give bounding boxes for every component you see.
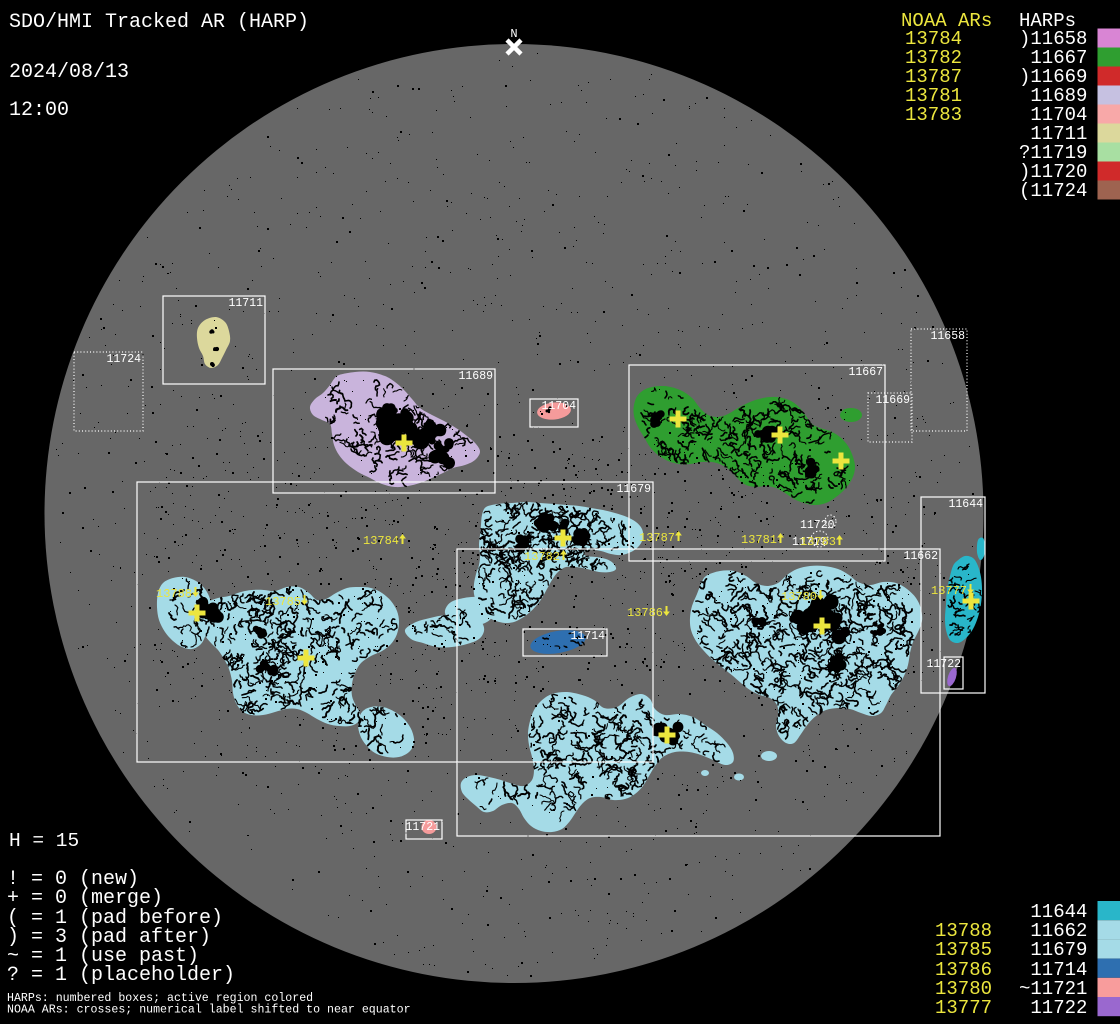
svg-text:13784: 13784 (363, 534, 399, 548)
svg-text:11679: 11679 (1019, 939, 1087, 961)
svg-text:11667: 11667 (848, 366, 883, 379)
svg-text:11724: 11724 (106, 353, 141, 366)
svg-text:11720: 11720 (800, 519, 835, 532)
svg-text:11644: 11644 (948, 498, 983, 511)
svg-text:11722: 11722 (926, 658, 961, 671)
svg-text:13786: 13786 (627, 606, 663, 620)
svg-text:11721: 11721 (405, 821, 440, 834)
svg-text:11722: 11722 (1019, 997, 1087, 1019)
svg-text:13777: 13777 (935, 997, 992, 1019)
svg-text:13783: 13783 (800, 535, 836, 549)
svg-text:N: N (510, 27, 517, 41)
svg-text:2024/08/13: 2024/08/13 (9, 61, 129, 84)
svg-text:13785: 13785 (935, 939, 992, 961)
svg-text:? = 1 (placeholder): ? = 1 (placeholder) (7, 964, 235, 987)
svg-text:13777: 13777 (931, 584, 967, 598)
svg-text:11711: 11711 (228, 297, 263, 310)
svg-text:13788: 13788 (156, 587, 192, 601)
svg-text:NOAA ARs: crosses; numerical l: NOAA ARs: crosses; numerical label shift… (7, 1004, 411, 1017)
svg-text:SDO/HMI Tracked AR (HARP): SDO/HMI Tracked AR (HARP) (9, 11, 309, 34)
svg-text:12:00: 12:00 (9, 99, 69, 122)
svg-text:13780: 13780 (781, 590, 817, 604)
svg-text:11679: 11679 (616, 483, 651, 496)
svg-text:13781: 13781 (741, 533, 777, 547)
svg-text:(11724: (11724 (1019, 180, 1087, 202)
svg-text:13783: 13783 (905, 104, 962, 126)
svg-text:11714: 11714 (570, 630, 605, 643)
svg-text:11658: 11658 (930, 330, 965, 343)
svg-text:13785: 13785 (265, 595, 301, 609)
svg-text:11689: 11689 (458, 370, 493, 383)
svg-text:13787: 13787 (639, 531, 675, 545)
svg-text:13782: 13782 (524, 550, 560, 564)
svg-text:11704: 11704 (541, 400, 576, 413)
svg-text:11669: 11669 (875, 394, 910, 407)
svg-text:H = 15: H = 15 (9, 830, 79, 852)
